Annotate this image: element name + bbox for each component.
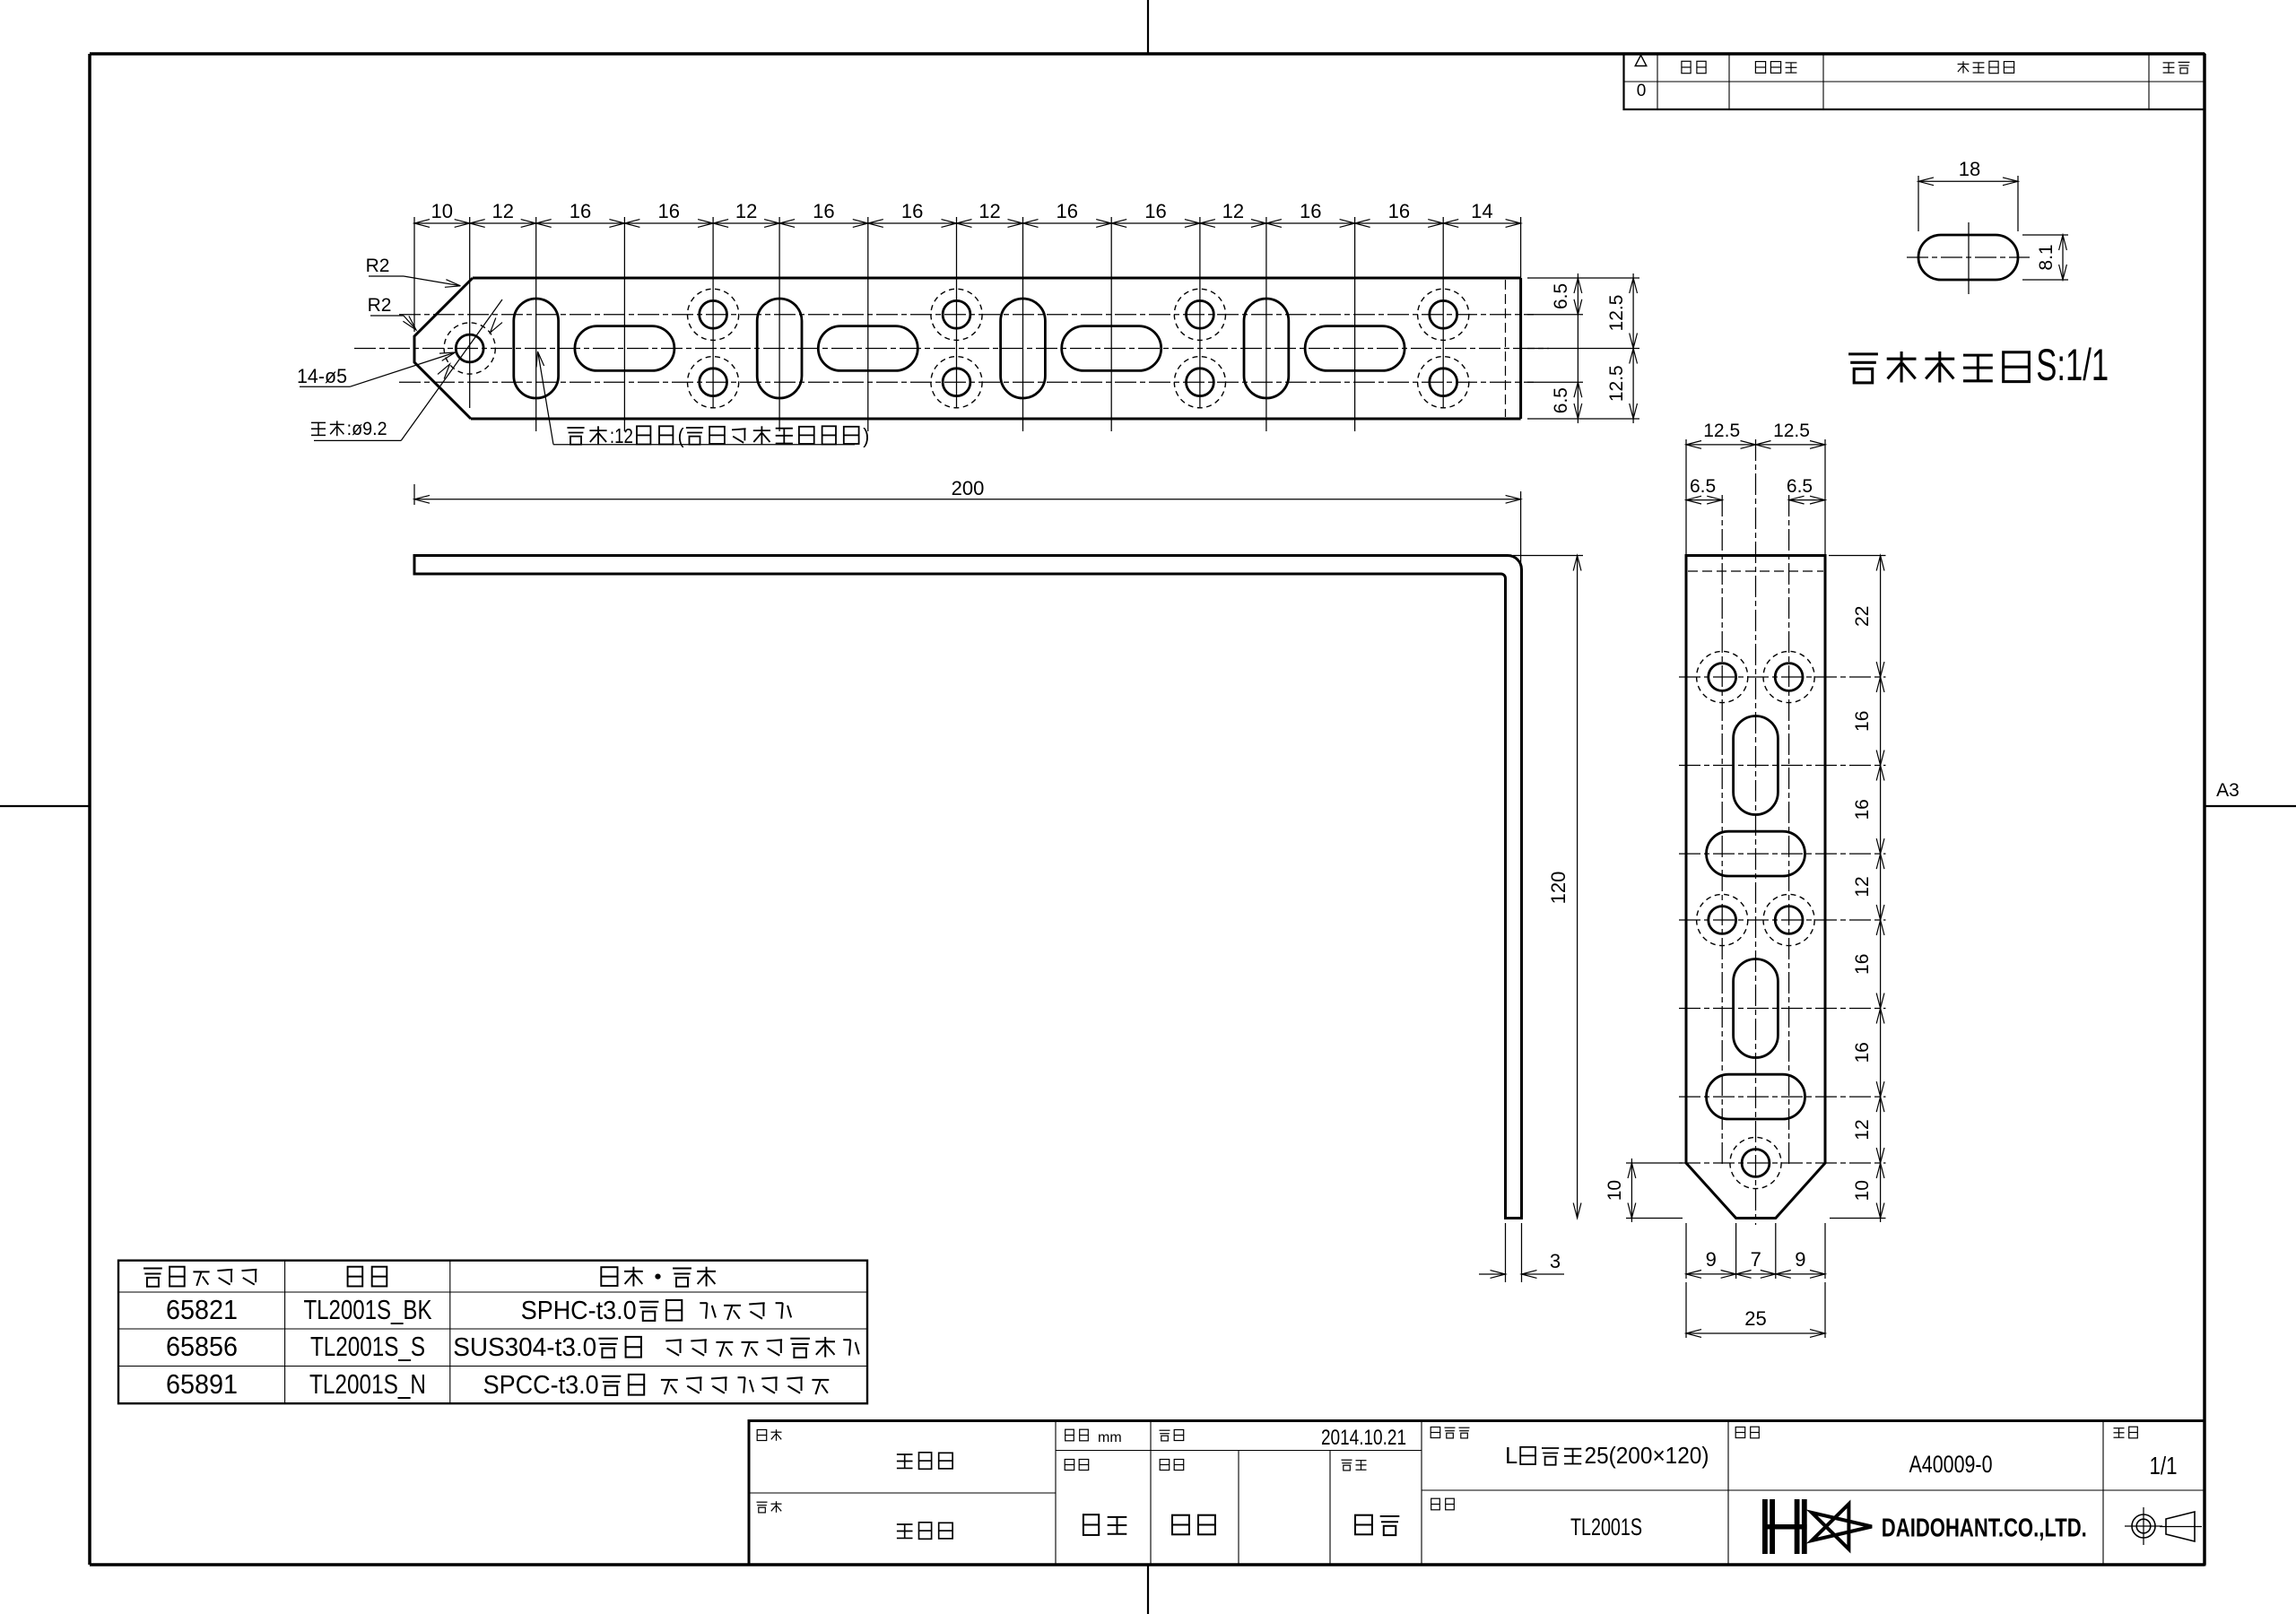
svg-text:DAIDOHANT.CO.,LTD.: DAIDOHANT.CO.,LTD. bbox=[1882, 1514, 2087, 1542]
svg-text:6.5: 6.5 bbox=[1690, 476, 1716, 497]
svg-text:22: 22 bbox=[1852, 606, 1873, 627]
svg-text:0: 0 bbox=[1637, 82, 1647, 100]
svg-text:12: 12 bbox=[1852, 1119, 1873, 1140]
svg-text:TL2001S_S: TL2001S_S bbox=[310, 1331, 425, 1362]
svg-text:L: L bbox=[1505, 1442, 1518, 1469]
svg-text:TL2001S_N: TL2001S_N bbox=[309, 1368, 426, 1400]
svg-text:SUS304-t3.0: SUS304-t3.0 bbox=[453, 1333, 596, 1362]
svg-text:16: 16 bbox=[1852, 711, 1873, 732]
svg-text:65821: 65821 bbox=[166, 1294, 238, 1325]
svg-text:16: 16 bbox=[1852, 954, 1873, 975]
svg-text:18: 18 bbox=[1959, 158, 1980, 180]
svg-text:SPHC-t3.0: SPHC-t3.0 bbox=[521, 1297, 637, 1325]
svg-text:12.5: 12.5 bbox=[1606, 295, 1627, 332]
svg-text:16: 16 bbox=[1852, 799, 1873, 820]
svg-text:16: 16 bbox=[1852, 1042, 1873, 1063]
svg-text:A3: A3 bbox=[2216, 780, 2239, 801]
svg-text:2014.10.21: 2014.10.21 bbox=[1321, 1426, 1406, 1450]
svg-text:): ) bbox=[863, 424, 869, 447]
svg-text:12: 12 bbox=[1852, 876, 1873, 897]
svg-text:12: 12 bbox=[491, 200, 513, 222]
svg-text:16: 16 bbox=[1300, 200, 1321, 222]
svg-text:25: 25 bbox=[1744, 1307, 1766, 1330]
svg-text:12.5: 12.5 bbox=[1773, 421, 1810, 441]
svg-text:16: 16 bbox=[1057, 200, 1078, 222]
svg-text:25(200×120): 25(200×120) bbox=[1585, 1442, 1709, 1469]
svg-text:16: 16 bbox=[570, 200, 591, 222]
svg-text:7: 7 bbox=[1751, 1248, 1761, 1271]
svg-text:16: 16 bbox=[1144, 200, 1166, 222]
svg-text:10: 10 bbox=[1605, 1180, 1625, 1201]
svg-text:6.5: 6.5 bbox=[1551, 387, 1571, 413]
svg-text:10: 10 bbox=[1852, 1180, 1873, 1201]
svg-text:16: 16 bbox=[813, 200, 834, 222]
svg-text:14-ø5: 14-ø5 bbox=[297, 365, 347, 387]
svg-text:8.1: 8.1 bbox=[2036, 244, 2057, 270]
svg-text:65856: 65856 bbox=[166, 1331, 238, 1362]
svg-text:TL2001S_BK: TL2001S_BK bbox=[304, 1294, 432, 1325]
svg-text:9: 9 bbox=[1706, 1248, 1717, 1271]
svg-text:3: 3 bbox=[1550, 1250, 1561, 1272]
svg-text:mm: mm bbox=[1098, 1430, 1122, 1445]
svg-text:12.5: 12.5 bbox=[1703, 421, 1740, 441]
svg-text:12.5: 12.5 bbox=[1606, 365, 1627, 402]
svg-text:1/1: 1/1 bbox=[2150, 1452, 2178, 1479]
svg-text:16: 16 bbox=[1388, 200, 1410, 222]
svg-text:A40009-0: A40009-0 bbox=[1909, 1451, 1993, 1478]
svg-text:R2: R2 bbox=[368, 295, 392, 316]
svg-text:12: 12 bbox=[1222, 200, 1244, 222]
svg-text:12: 12 bbox=[978, 200, 1000, 222]
svg-text:S:1/1: S:1/1 bbox=[2036, 340, 2109, 390]
svg-text:10: 10 bbox=[431, 200, 453, 222]
svg-text:120: 120 bbox=[1547, 872, 1570, 905]
svg-text:200: 200 bbox=[952, 477, 985, 499]
svg-text:TL2001S: TL2001S bbox=[1570, 1514, 1642, 1540]
svg-text:12: 12 bbox=[735, 200, 757, 222]
svg-text::ø9.2: :ø9.2 bbox=[347, 419, 387, 439]
svg-text:9: 9 bbox=[1795, 1248, 1805, 1271]
svg-text:SPCC-t3.0: SPCC-t3.0 bbox=[483, 1371, 599, 1400]
svg-text:R2: R2 bbox=[366, 256, 390, 276]
svg-text:16: 16 bbox=[901, 200, 923, 222]
svg-text:6.5: 6.5 bbox=[1551, 283, 1571, 309]
svg-text:14: 14 bbox=[1471, 200, 1492, 222]
svg-text:6.5: 6.5 bbox=[1787, 476, 1813, 497]
svg-text:16: 16 bbox=[657, 200, 679, 222]
svg-text:65891: 65891 bbox=[166, 1368, 238, 1400]
